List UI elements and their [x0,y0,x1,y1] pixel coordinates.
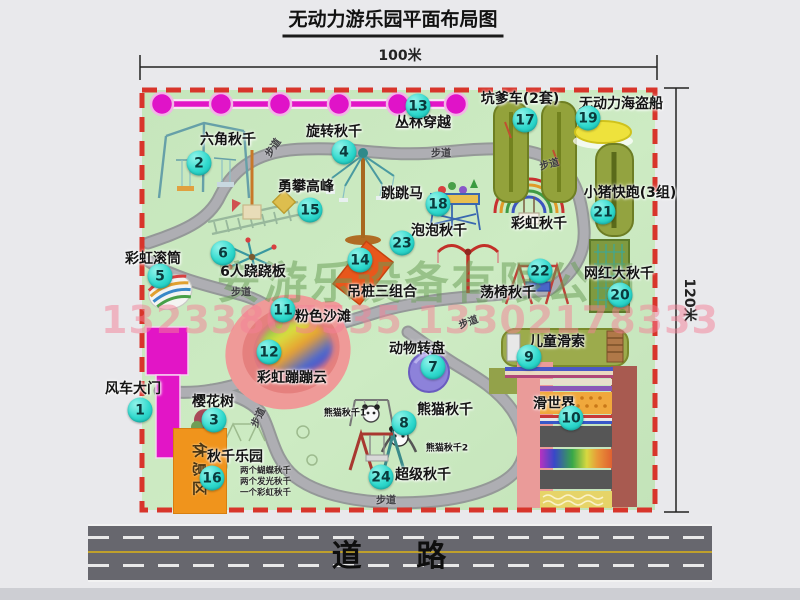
attraction-label-hanging-pile: 吊桩三组合 [347,281,417,301]
number-badge-18: 18 [426,192,451,217]
swing-paradise-note-3: 一个彩虹秋千 [240,486,291,498]
footpath-label: 步道 [231,284,251,299]
number-badge-4: 4 [332,140,357,165]
footpath-label: 步道 [431,145,451,160]
attraction-sublabel-panda-swing-1: 熊猫秋千1 [324,406,366,419]
number-badge-15: 15 [298,198,323,223]
attraction-label-seesaw: 6人跷跷板 [220,261,286,281]
number-badge-8: 8 [392,411,417,436]
attraction-label-swing-chair: 荡椅秋千 [480,282,536,302]
attraction-label-climbing-peak: 勇攀高峰 [278,176,334,196]
attraction-label-swing-paradise: 秋千乐园 [207,446,263,466]
number-badge-6: 6 [211,241,236,266]
number-badge-12: 12 [257,340,282,365]
footpath-label: 步道 [376,492,396,507]
attraction-label-bubble-swing: 泡泡秋千 [411,220,467,240]
attraction-sublabel-panda-swing-2: 熊猫秋千2 [426,441,468,454]
attraction-label-jumping-horse: 跳跳马 [381,183,423,203]
number-badge-2: 2 [187,151,212,176]
park-layout-map: 无动力游乐园平面布局图 100米 120米 [0,0,800,600]
attraction-label-rainbow-swing: 彩虹秋千 [511,213,567,233]
number-badge-14: 14 [348,248,373,273]
number-badge-19: 19 [576,106,601,131]
number-badge-17: 17 [513,108,538,133]
number-badge-9: 9 [517,345,542,370]
number-badge-20: 20 [608,283,633,308]
attraction-label-super-swing: 超级秋千 [395,464,451,484]
number-badge-16: 16 [200,466,225,491]
number-badge-11: 11 [271,298,296,323]
number-badge-21: 21 [591,200,616,225]
number-badge-24: 24 [369,465,394,490]
attraction-label-rainbow-cloud: 彩虹蹦蹦云 [257,367,327,387]
attraction-label-spinning-swing: 旋转秋千 [306,121,362,141]
number-badge-22: 22 [528,259,553,284]
number-badge-1: 1 [128,398,153,423]
attraction-label-panda-swing: 熊猫秋千 [417,399,473,419]
attraction-label-pink-beach: 粉色沙滩 [295,306,351,326]
attraction-label-hexagon-swing: 六角秋千 [200,129,256,149]
attraction-label-kengdie-car: 坑爹车(2套) [481,88,560,108]
attraction-label-windmill-gate: 风车大门 [105,378,161,398]
number-badge-10: 10 [559,406,584,431]
number-badge-3: 3 [202,408,227,433]
attraction-label-net-big-swing: 网红大秋千 [584,263,654,283]
number-badge-5: 5 [148,264,173,289]
number-badge-13: 13 [406,94,431,119]
number-badge-23: 23 [390,231,415,256]
number-badge-7: 7 [421,355,446,380]
attraction-label-pig-run: 小猪快跑(3组) [584,182,677,202]
